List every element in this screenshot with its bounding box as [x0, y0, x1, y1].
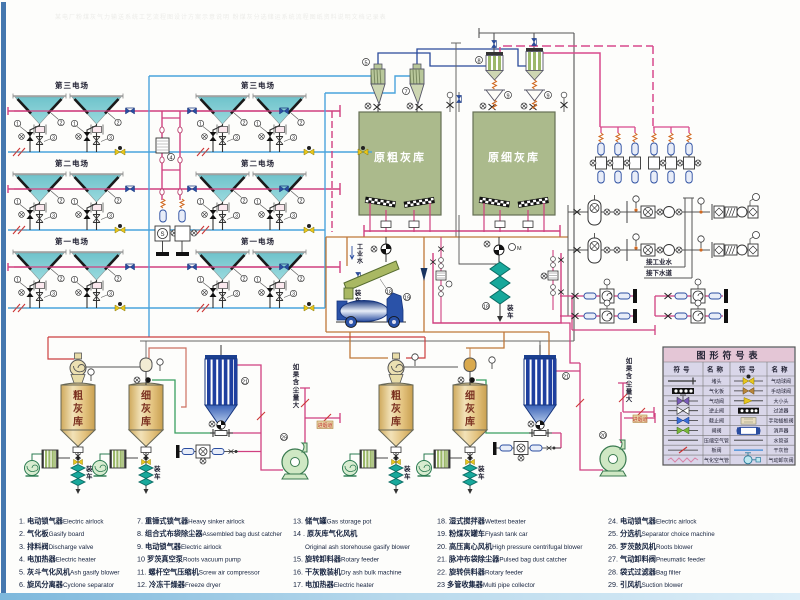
- svg-text:手动插板阀: 手动插板阀: [768, 418, 793, 425]
- svg-text:压缩空气管: 压缩空气管: [704, 437, 729, 444]
- svg-text:第三电场: 第三电场: [241, 80, 275, 90]
- svg-text:第二电场: 第二电场: [241, 158, 275, 168]
- svg-text:某电厂粉煤灰气力输送系统工艺流程图设计方案示意说明 粉煤灰分: 某电厂粉煤灰气力输送系统工艺流程图设计方案示意说明 粉煤灰分选储运系统流程图纸资…: [55, 13, 387, 21]
- svg-text:第一电场: 第一电场: [55, 236, 89, 246]
- svg-text:气动阀: 气动阀: [709, 398, 724, 405]
- svg-text:粗灰库: 粗灰库: [391, 389, 401, 428]
- svg-text:4. 电加热器Electric heater: 4. 电加热器Electric heater: [19, 555, 96, 564]
- svg-text:粗灰库: 粗灰库: [73, 389, 83, 428]
- svg-text:21: 21: [563, 374, 569, 380]
- svg-text:第三电场: 第三电场: [55, 80, 89, 90]
- svg-text:接下水道: 接下水道: [646, 268, 673, 277]
- svg-text:符号: 符号: [674, 365, 693, 374]
- svg-text:17. 电加热器Electric heater: 17. 电加热器Electric heater: [293, 580, 374, 589]
- svg-text:16. 干灰散装机Dry ash bulk machine: 16. 干灰散装机Dry ash bulk machine: [293, 567, 402, 576]
- svg-text:细灰库: 细灰库: [141, 389, 151, 428]
- svg-text:Original ash storehouse gasify: Original ash storehouse gasify blower: [305, 544, 410, 551]
- svg-text:名称: 名称: [707, 365, 726, 374]
- svg-text:19. 粉煤灰罐车Flyash tank car: 19. 粉煤灰罐车Flyash tank car: [437, 529, 528, 538]
- svg-text:截止阀: 截止阀: [709, 418, 724, 425]
- svg-text:S: S: [160, 232, 164, 238]
- svg-text:28. 袋式过滤器Bag filter: 28. 袋式过滤器Bag filter: [608, 567, 681, 576]
- svg-text:进烟道: 进烟道: [317, 422, 332, 429]
- svg-text:逆止阀: 逆止阀: [709, 408, 724, 415]
- svg-text:气化板: 气化板: [709, 388, 724, 395]
- svg-text:工业水: 工业水: [357, 244, 364, 265]
- svg-text:8. 组合式布袋除尘器Assembled bag dust: 8. 组合式布袋除尘器Assembled bag dust catcher: [137, 529, 282, 538]
- svg-text:26. 罗茨鼓风机Roots blower: 26. 罗茨鼓风机Roots blower: [608, 542, 693, 551]
- svg-text:符号: 符号: [739, 365, 758, 374]
- svg-text:接工业水: 接工业水: [646, 257, 673, 266]
- svg-text:20: 20: [600, 433, 606, 439]
- svg-text:18. 湿式搅拌器Wettest beater: 18. 湿式搅拌器Wettest beater: [437, 517, 526, 526]
- svg-text:25. 分选机Separator choice machin: 25. 分选机Separator choice machine: [608, 529, 715, 538]
- svg-text:气动卸灰阀: 气动卸灰阀: [768, 457, 793, 464]
- svg-text:12. 冷冻干燥器Freeze dryer: 12. 冷冻干燥器Freeze dryer: [137, 580, 221, 589]
- svg-text:水管道: 水管道: [773, 437, 788, 444]
- svg-text:第二电场: 第二电场: [55, 158, 89, 168]
- svg-text:4: 4: [169, 155, 172, 161]
- svg-text:9. 电动锁气器Electric airlock: 9. 电动锁气器Electric airlock: [137, 542, 222, 551]
- svg-text:如果含尘量大: 如果含尘量大: [292, 362, 300, 409]
- svg-text:手动球阀: 手动球阀: [771, 388, 791, 395]
- svg-text:27. 气动卸料阀Pneumatic feeder: 27. 气动卸料阀Pneumatic feeder: [608, 555, 705, 564]
- svg-text:堵头: 堵头: [711, 378, 721, 385]
- svg-text:7. 重锤式锁气器Heavy sinker airlock: 7. 重锤式锁气器Heavy sinker airlock: [137, 517, 245, 526]
- svg-text:19: 19: [404, 295, 410, 301]
- svg-text:过滤器: 过滤器: [773, 408, 788, 415]
- svg-text:如果含尘量大: 如果含尘量大: [625, 356, 633, 403]
- svg-text:24. 电动锁气器Electric airlock: 24. 电动锁气器Electric airlock: [608, 517, 697, 526]
- svg-text:21: 21: [242, 379, 248, 385]
- svg-text:气化空气管: 气化空气管: [704, 457, 729, 464]
- svg-text:细灰库: 细灰库: [465, 389, 475, 428]
- svg-text:1. 电动锁气器Electric airlock: 1. 电动锁气器Electric airlock: [19, 517, 104, 526]
- svg-text:第一电场: 第一电场: [241, 236, 275, 246]
- svg-text:原粗灰库: 原粗灰库: [374, 150, 426, 164]
- svg-text:18: 18: [483, 304, 489, 310]
- svg-text:29: 29: [281, 435, 287, 441]
- svg-text:6. 旋风分离器Cyclone separator: 6. 旋风分离器Cyclone separator: [19, 580, 114, 589]
- svg-text:8: 8: [477, 58, 480, 64]
- svg-text:13. 储气罐Gas storage pot: 13. 储气罐Gas storage pot: [293, 517, 372, 526]
- svg-text:板阀: 板阀: [711, 447, 721, 454]
- svg-text:20. 高压离心风机High pressure centri: 20. 高压离心风机High pressure centrifugal blow…: [437, 542, 582, 551]
- svg-text:5. 灰斗气化风机Ash gasify blower: 5. 灰斗气化风机Ash gasify blower: [19, 567, 120, 576]
- svg-text:23 多管收集器Multi pipe collector: 23 多管收集器Multi pipe collector: [437, 580, 535, 589]
- svg-text:消声器: 消声器: [773, 427, 788, 434]
- svg-text:9: 9: [506, 93, 509, 99]
- svg-text:干灰管: 干灰管: [773, 447, 788, 454]
- svg-text:3. 排料阀Discharge valve: 3. 排料阀Discharge valve: [19, 542, 94, 551]
- svg-text:22. 旋转供料器Rotary feeder: 22. 旋转供料器Rotary feeder: [437, 567, 523, 576]
- svg-text:闸阀: 闸阀: [711, 427, 721, 434]
- svg-text:大小头: 大小头: [773, 398, 788, 405]
- svg-text:21. 脉冲布袋除尘器Pulsed bag dust cat: 21. 脉冲布袋除尘器Pulsed bag dust catcher: [437, 555, 567, 564]
- svg-text:原细灰库: 原细灰库: [488, 150, 540, 164]
- svg-text:5: 5: [364, 60, 367, 66]
- svg-text:图形符号表: 图形符号表: [696, 350, 761, 361]
- svg-text:7: 7: [404, 89, 407, 95]
- svg-text:14 . 原灰库气化风机: 14 . 原灰库气化风机: [293, 529, 358, 538]
- svg-text:装车: 装车: [506, 303, 514, 320]
- svg-text:气动球阀: 气动球阀: [771, 378, 791, 385]
- svg-text:10 罗茨真空泵Roots vacuum pump: 10 罗茨真空泵Roots vacuum pump: [137, 555, 241, 564]
- svg-text:15. 旋转卸料器Rotary feeder: 15. 旋转卸料器Rotary feeder: [293, 555, 379, 564]
- svg-text:名称: 名称: [772, 365, 791, 374]
- svg-text:进烟道: 进烟道: [632, 416, 647, 423]
- svg-text:2. 气化板Gasify board: 2. 气化板Gasify board: [19, 529, 85, 538]
- svg-text:11. 螺杆空气压缩机Screw air compresso: 11. 螺杆空气压缩机Screw air compressor: [137, 567, 260, 576]
- svg-text:9: 9: [546, 93, 549, 99]
- svg-text:M: M: [517, 246, 522, 252]
- svg-text:29. 引风机Suction blower: 29. 引风机Suction blower: [608, 580, 683, 589]
